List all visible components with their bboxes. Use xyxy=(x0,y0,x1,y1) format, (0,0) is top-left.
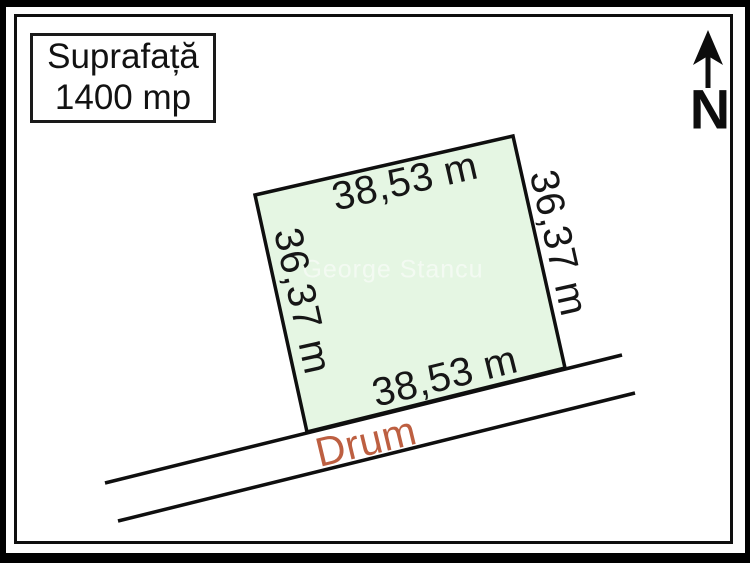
surface-info-box: Suprafață 1400 mp xyxy=(30,33,216,123)
plot-sketch-image: Suprafață 1400 mp N George Stancu 38,53 … xyxy=(0,0,750,563)
surface-value: 1400 mp xyxy=(55,78,191,119)
surface-label: Suprafață xyxy=(47,37,199,78)
watermark-text: George Stancu xyxy=(302,256,483,285)
north-label: N xyxy=(690,77,730,142)
